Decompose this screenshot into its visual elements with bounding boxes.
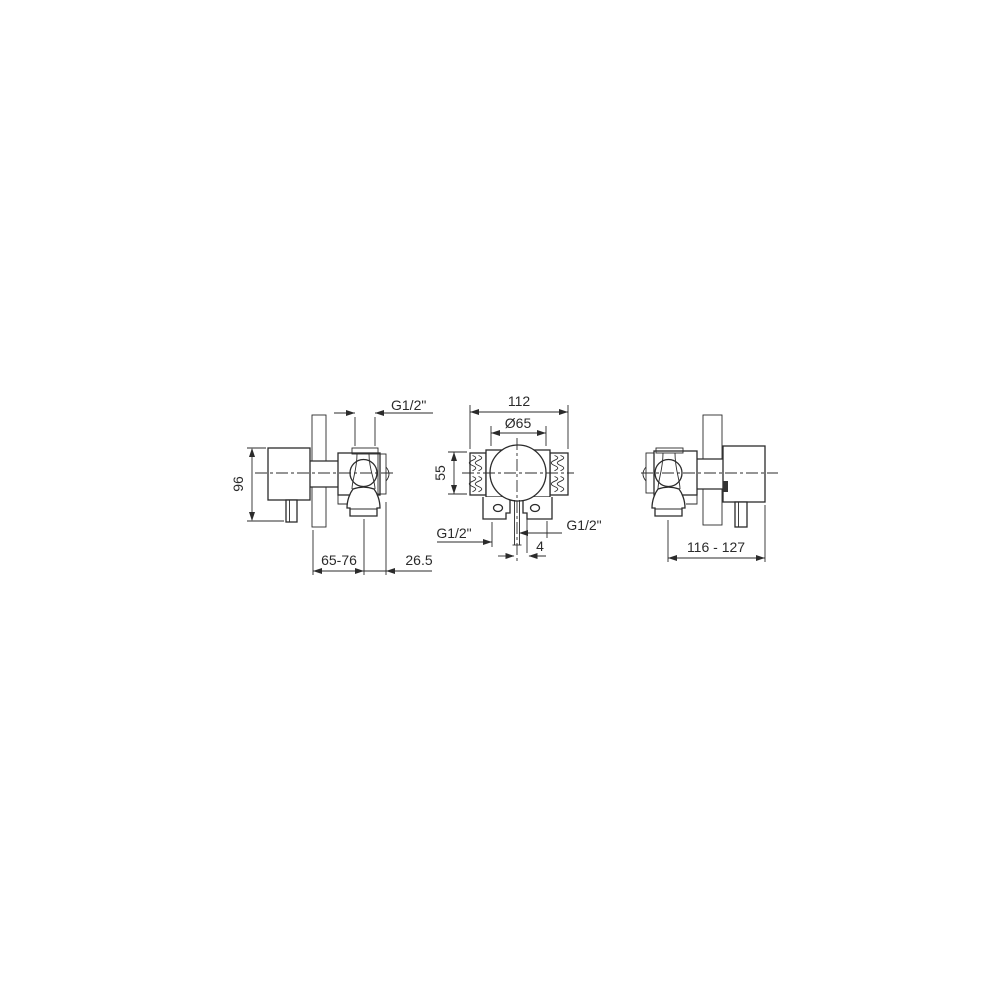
side-view-right: 116 - 127 [641, 415, 778, 562]
arrowhead [470, 409, 479, 415]
dim-label-handle-diameter: Ø65 [505, 415, 532, 431]
arrowhead [451, 485, 457, 494]
body-clamp-detail [723, 481, 728, 492]
arrowhead [451, 452, 457, 461]
dim-label-outlet-offset: 4 [536, 538, 544, 554]
arrowhead [355, 568, 364, 574]
wall-section-upper [703, 415, 722, 459]
outlet-bell [652, 487, 685, 516]
front-view: 112 Ø65 55 G1/2" G1/2" 4 [432, 393, 602, 562]
dim-label-outlet-to-front: 26.5 [405, 552, 432, 568]
dim-label-left-port: G1/2" [436, 525, 471, 541]
arrowhead [346, 410, 355, 416]
concealed-body [723, 446, 765, 502]
dim-label-overall-width: 112 [508, 393, 531, 409]
arrowhead [506, 553, 515, 559]
bracket-hole-left [494, 505, 503, 512]
dim-label-height: 96 [230, 476, 246, 492]
arrowhead [375, 410, 384, 416]
wall-section-upper [312, 415, 326, 461]
drawing-page: G1/2" 96 65-76 26.5 [0, 0, 1000, 1000]
arrowhead [668, 555, 677, 561]
outlet-bell [347, 487, 380, 516]
side-view-left: G1/2" 96 65-76 26.5 [230, 397, 433, 575]
arrowhead [249, 512, 255, 521]
arrowhead [249, 448, 255, 457]
right-threaded-port [550, 453, 568, 495]
arrowhead [756, 555, 765, 561]
bottom-pipe [286, 500, 297, 522]
dim-label-body-height: 55 [432, 465, 448, 481]
dim-label-wall-to-body: 116 - 127 [687, 539, 745, 555]
front-knob-bump [386, 467, 389, 481]
bottom-pipe [735, 502, 747, 527]
arrowhead [491, 430, 500, 436]
arrowhead [537, 430, 546, 436]
valve-body-step [686, 495, 697, 504]
dim-label-right-port: G1/2" [566, 517, 601, 533]
arrowhead [519, 530, 528, 536]
bracket-hole-right [531, 505, 540, 512]
dim-label-wall-to-outlet: 65-76 [321, 552, 357, 568]
concealed-body [268, 448, 310, 500]
arrowhead [559, 409, 568, 415]
wall-section-lower [312, 487, 326, 527]
dim-label-top-thread: G1/2" [391, 397, 426, 413]
left-threaded-port [470, 453, 486, 495]
arrowhead [386, 568, 395, 574]
arrowhead [313, 568, 322, 574]
wall-section-lower [703, 489, 722, 525]
front-knob-bump [643, 467, 646, 481]
technical-drawing: G1/2" 96 65-76 26.5 [0, 0, 1000, 1000]
arrowhead [483, 539, 492, 545]
